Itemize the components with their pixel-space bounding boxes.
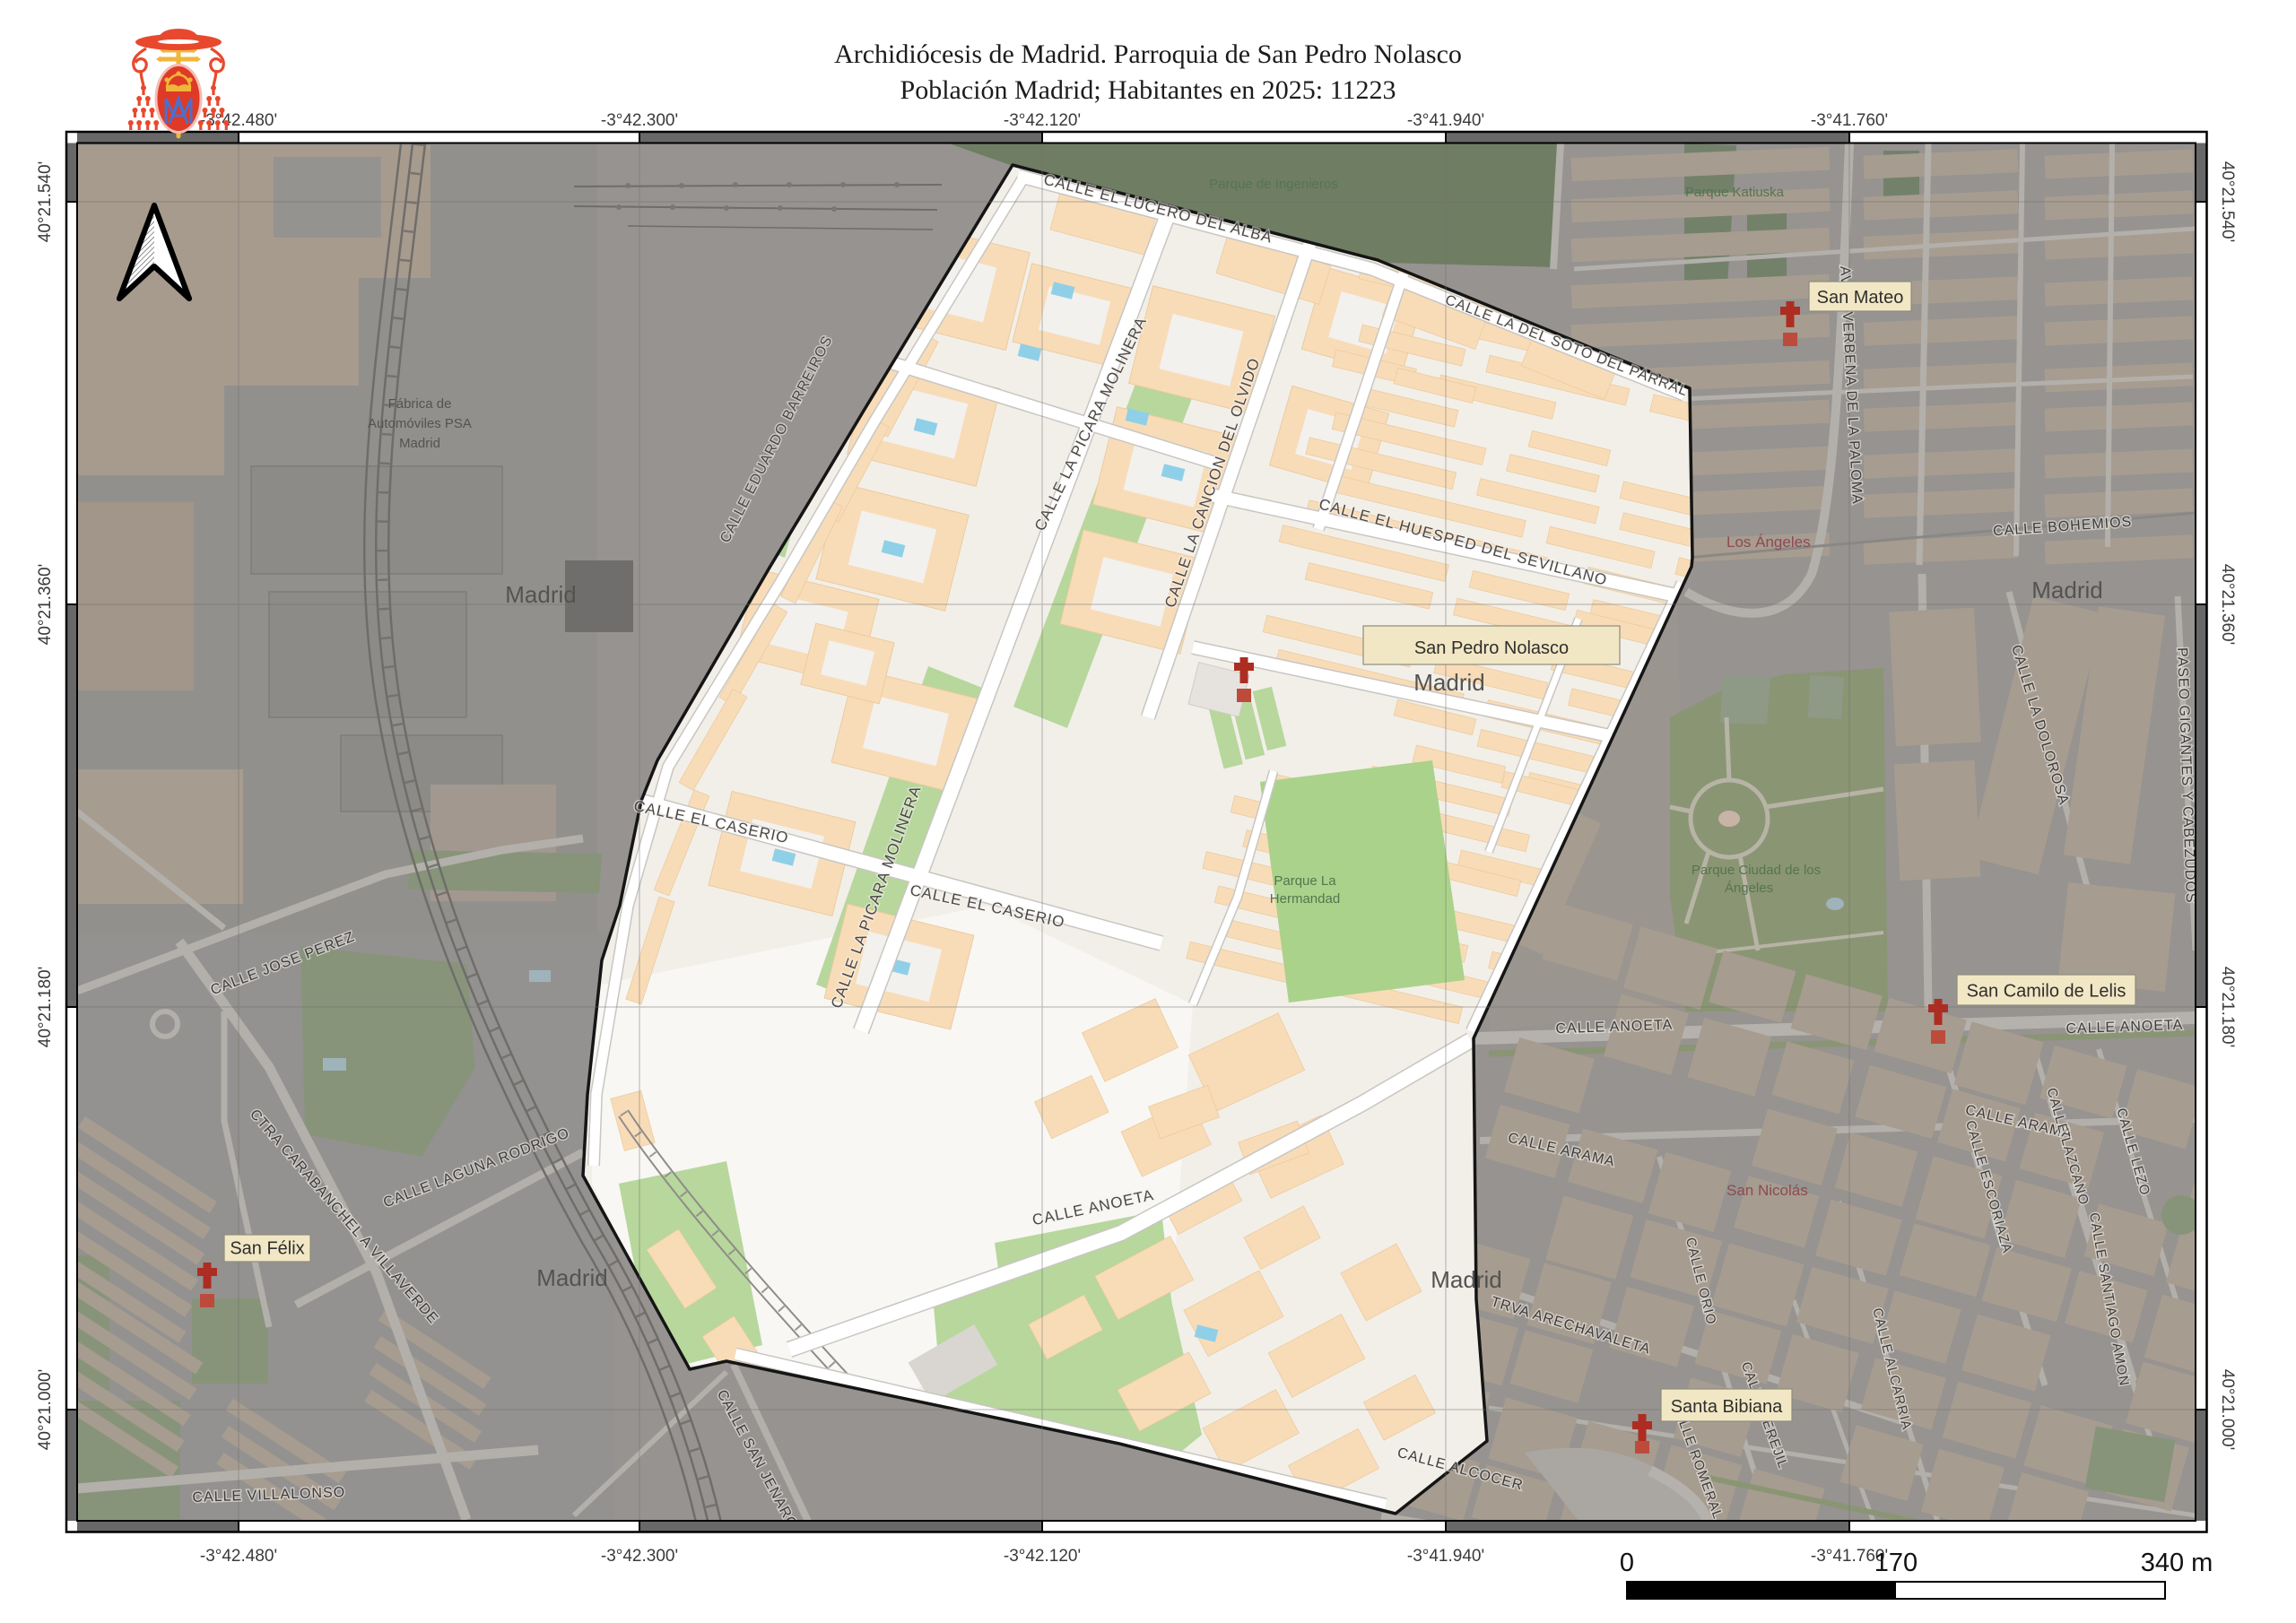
svg-text:Archidiócesis de Madrid. Parro: Archidiócesis de Madrid. Parroquia de Sa… [834,39,1462,69]
svg-text:Madrid: Madrid [505,581,576,608]
svg-text:Fábrica de: Fábrica de [388,396,452,412]
svg-text:Los Ángeles: Los Ángeles [1726,534,1811,551]
svg-text:Parque La: Parque La [1274,873,1336,889]
svg-text:-3°41.940': -3°41.940' [1407,1547,1484,1566]
svg-text:-3°42.120': -3°42.120' [1004,1547,1081,1566]
svg-text:Santa Bibiana: Santa Bibiana [1671,1397,1783,1417]
svg-text:0: 0 [1620,1549,1634,1577]
svg-text:-3°42.300': -3°42.300' [601,1547,678,1566]
svg-text:40°21.360': 40°21.360' [36,564,55,645]
svg-text:San Camilo de Lelis: San Camilo de Lelis [1967,981,2126,1001]
svg-text:-3°42.120': -3°42.120' [1004,111,1081,130]
svg-text:Parque Ciudad de los: Parque Ciudad de los [1692,863,1821,878]
svg-text:San Mateo: San Mateo [1817,288,1904,308]
svg-text:-3°42.480': -3°42.480' [200,1547,277,1566]
svg-text:40°21.180': 40°21.180' [2218,967,2237,1047]
svg-text:Hermandad: Hermandad [1270,891,1340,907]
svg-text:Parque Katiuska: Parque Katiuska [1685,185,1785,200]
svg-text:170: 170 [1874,1549,1918,1577]
svg-text:340 m: 340 m [2141,1549,2213,1577]
svg-text:40°21.180': 40°21.180' [36,967,55,1047]
svg-text:40°21.000': 40°21.000' [36,1369,55,1450]
svg-text:Población Madrid; Habitantes e: Población Madrid; Habitantes en 2025: 11… [900,75,1396,105]
svg-text:Ángeles: Ángeles [1725,881,1773,896]
svg-text:Madrid: Madrid [1413,669,1484,696]
svg-text:-3°41.940': -3°41.940' [1407,111,1484,130]
svg-text:-3°42.480': -3°42.480' [200,111,277,130]
svg-text:Madrid: Madrid [1431,1266,1501,1293]
svg-text:40°21.540': 40°21.540' [2218,161,2237,242]
svg-text:San Pedro Nolasco: San Pedro Nolasco [1414,638,1569,658]
svg-text:40°21.000': 40°21.000' [2218,1369,2237,1450]
svg-text:40°21.540': 40°21.540' [36,161,55,242]
svg-text:Madrid: Madrid [536,1264,607,1291]
svg-text:-3°42.300': -3°42.300' [601,111,678,130]
svg-text:Madrid: Madrid [399,436,440,451]
svg-text:Automóviles PSA: Automóviles PSA [368,416,472,431]
svg-text:San Félix: San Félix [230,1239,304,1259]
svg-text:40°21.360': 40°21.360' [2218,564,2237,645]
svg-text:Parque de Ingenieros: Parque de Ingenieros [1209,177,1337,192]
svg-text:Madrid: Madrid [2031,577,2102,603]
svg-text:-3°41.760': -3°41.760' [1811,111,1888,130]
svg-text:San Nicolás: San Nicolás [1726,1182,1808,1199]
